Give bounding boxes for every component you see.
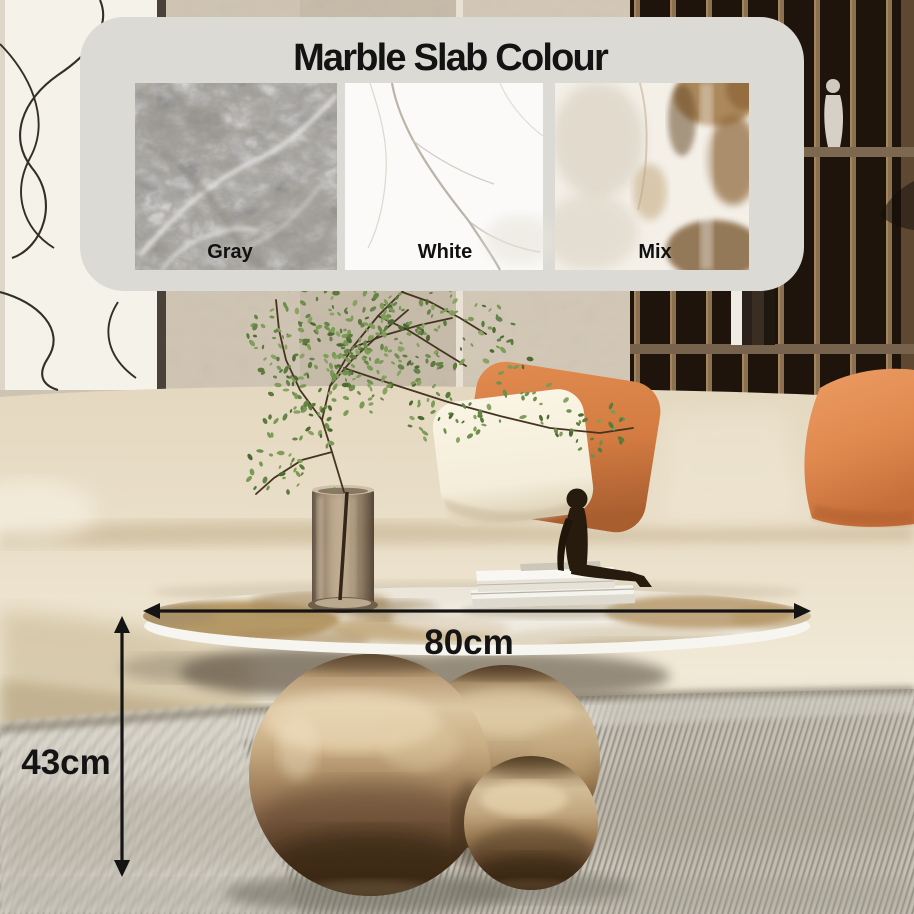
svg-text:Gray: Gray	[207, 241, 253, 263]
svg-text:Mix: Mix	[638, 241, 671, 263]
svg-text:80cm: 80cm	[424, 623, 514, 662]
svg-text:White: White	[418, 241, 472, 263]
svg-text:Marble Slab Colour: Marble Slab Colour	[293, 37, 609, 79]
svg-text:43cm: 43cm	[21, 743, 111, 782]
